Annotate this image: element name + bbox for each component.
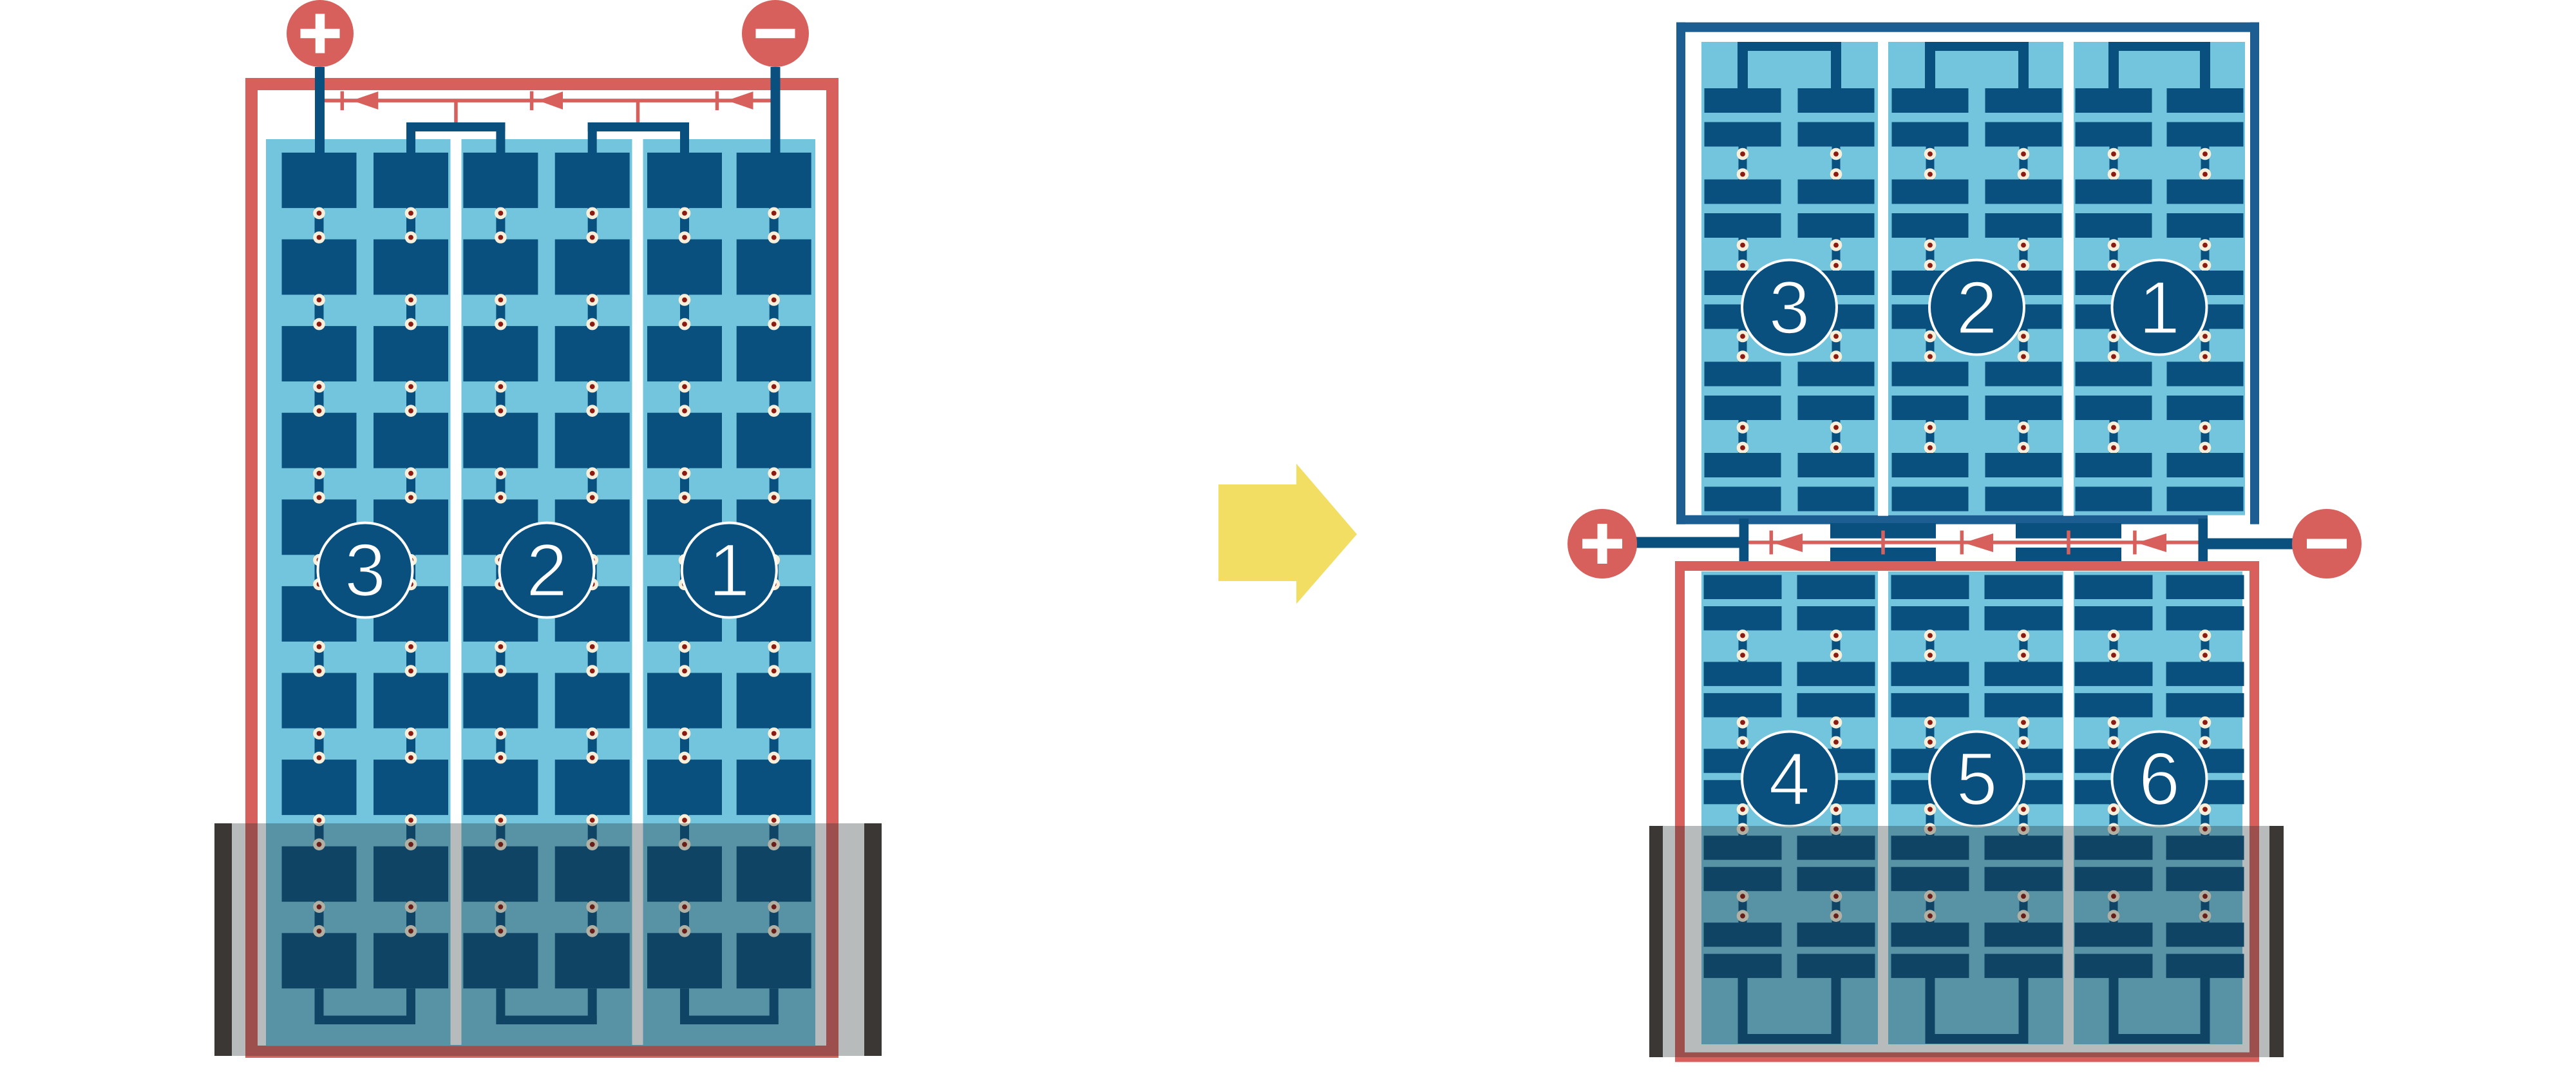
- svg-text:2: 2: [1956, 266, 1998, 350]
- svg-text:3: 3: [1768, 266, 1810, 350]
- svg-text:3: 3: [345, 528, 386, 612]
- svg-text:2: 2: [526, 528, 568, 612]
- svg-text:5: 5: [1956, 737, 1998, 821]
- svg-text:4: 4: [1768, 737, 1810, 821]
- svg-text:6: 6: [2139, 737, 2181, 821]
- svg-text:1: 1: [708, 528, 750, 612]
- svg-text:1: 1: [2139, 266, 2181, 350]
